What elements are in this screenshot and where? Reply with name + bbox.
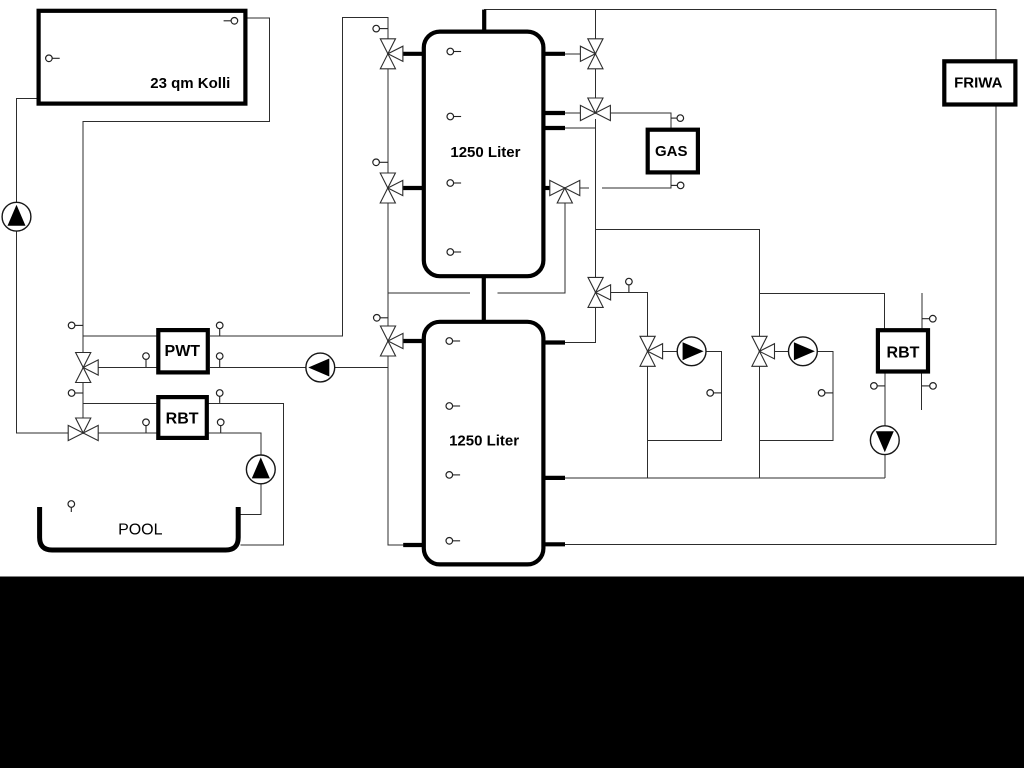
- svg-text:1250 Liter: 1250 Liter: [450, 144, 520, 161]
- svg-text:PWT: PWT: [165, 343, 201, 360]
- svg-text:1250 Liter: 1250 Liter: [449, 433, 519, 450]
- svg-text:RBT: RBT: [887, 344, 920, 361]
- svg-text:RBT: RBT: [166, 410, 199, 427]
- svg-text:FRIWA: FRIWA: [954, 74, 1002, 91]
- svg-text:23 qm Kolli: 23 qm Kolli: [150, 75, 230, 92]
- svg-text:POOL: POOL: [118, 522, 163, 539]
- svg-text:GAS: GAS: [655, 143, 688, 160]
